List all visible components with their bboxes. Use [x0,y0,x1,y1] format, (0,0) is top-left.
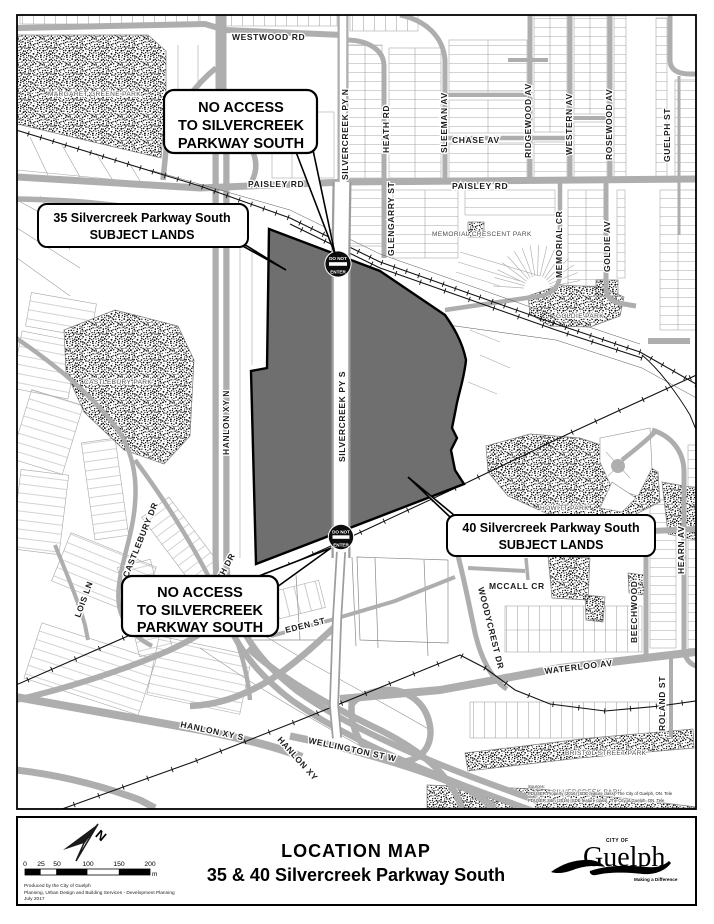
svg-text:PARKWAY SOUTH: PARKWAY SOUTH [178,136,304,152]
svg-text:SILVERCREEK PY S: SILVERCREEK PY S [337,371,347,462]
svg-text:PAISLEY RD: PAISLEY RD [248,179,304,189]
svg-text:SLEEMAN AV: SLEEMAN AV [439,92,449,153]
svg-text:HOWITT PARK: HOWITT PARK [540,505,589,512]
svg-text:LOCATION MAP: LOCATION MAP [281,841,431,861]
svg-text:Making a Difference: Making a Difference [634,877,678,882]
svg-text:35 Silvercreek Parkway South: 35 Silvercreek Parkway South [53,211,230,225]
svg-text:TO SILVERCREEK: TO SILVERCREEK [178,118,304,134]
svg-text:CHASE AV: CHASE AV [452,135,500,145]
svg-text:RIDGEWOOD AV: RIDGEWOOD AV [523,83,533,158]
svg-text:GOLDIE AV: GOLDIE AV [602,221,612,272]
svg-text:40 Silvercreek Parkway South: 40 Silvercreek Parkway South [462,521,639,535]
svg-text:MEMORIAL CR: MEMORIAL CR [554,211,564,278]
svg-text:0: 0 [23,861,27,868]
svg-text:ROSEWOOD AV: ROSEWOOD AV [604,89,614,160]
svg-text:m: m [152,871,157,878]
svg-text:SUBJECT LANDS: SUBJECT LANDS [90,228,195,242]
svg-text:SUBJECT LANDS: SUBJECT LANDS [499,538,604,552]
svg-text:MEMORIAL CRESCENT PARK: MEMORIAL CRESCENT PARK [432,231,532,238]
svg-text:PAISLEY RD: PAISLEY RD [452,181,508,191]
svg-text:100: 100 [82,861,94,868]
svg-text:GLENGARRY ST: GLENGARRY ST [386,182,396,256]
svg-text:35 & 40 Silvercreek Parkway So: 35 & 40 Silvercreek Parkway South [207,865,505,885]
svg-text:July 2017: July 2017 [24,896,45,902]
svg-text:HEATH RD: HEATH RD [381,105,391,153]
svg-text:PARKWAY SOUTH: PARKWAY SOUTH [137,620,263,636]
svg-text:HANLON XY N: HANLON XY N [221,390,231,455]
svg-text:TO SILVERCREEK: TO SILVERCREEK [137,603,263,619]
svg-text:PDUSER.Property (2016) [SDE fe: PDUSER.Property (2016) [SDE feature clas… [528,791,673,796]
svg-text:200: 200 [144,861,156,868]
svg-text:CASTLEBURY PARK: CASTLEBURY PARK [84,379,152,386]
svg-text:BEECHWOOD: BEECHWOOD [629,580,639,643]
svg-text:WESTWOOD RD: WESTWOOD RD [232,32,305,42]
svg-text:50: 50 [53,861,61,868]
svg-text:DO NOT: DO NOT [329,256,347,261]
svg-text:SILVERCREEK PY N: SILVERCREEK PY N [340,89,350,180]
svg-text:GOLDIE PARK: GOLDIE PARK [556,313,604,320]
svg-text:150: 150 [113,861,125,868]
svg-text:DO NOT: DO NOT [332,529,350,534]
svg-text:WESTERN AV: WESTERN AV [564,93,574,155]
svg-text:GUELPH ST: GUELPH ST [662,108,672,162]
svg-text:Produced by the City of Guelph: Produced by the City of Guelph [24,883,91,889]
svg-text:NO ACCESS: NO ACCESS [198,100,284,116]
svg-text:25: 25 [37,861,45,868]
svg-text:Planning, Urban Design and Bui: Planning, Urban Design and Building Serv… [24,890,175,896]
svg-text:ROLAND ST: ROLAND ST [657,676,667,731]
svg-text:NO ACCESS: NO ACCESS [157,585,243,601]
svg-text:HEARN AV: HEARN AV [676,526,686,574]
svg-text:MARGARET GREENE PARK: MARGARET GREENE PARK [48,91,141,98]
svg-text:PDUSER.Sitm (2016) [SDE featur: PDUSER.Sitm (2016) [SDE feature class]. … [528,798,665,803]
svg-text:BRISTOL STREET PARK: BRISTOL STREET PARK [565,750,647,757]
svg-text:ENTER: ENTER [333,543,349,548]
svg-text:ENTER: ENTER [330,270,346,275]
svg-text:MCCALL CR: MCCALL CR [489,581,545,591]
svg-text:Sources:: Sources: [528,784,545,789]
